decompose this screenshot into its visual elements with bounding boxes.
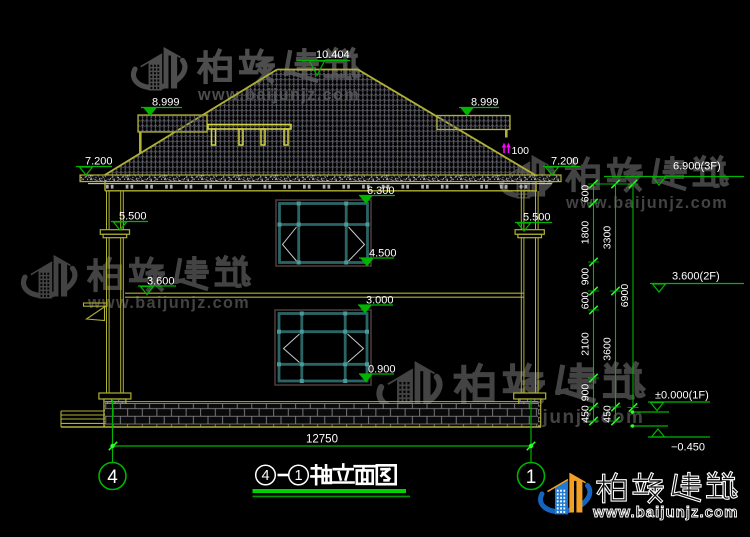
svg-text:4: 4 (107, 467, 118, 488)
svg-text:4: 4 (261, 468, 269, 484)
svg-text:1800: 1800 (580, 221, 592, 245)
svg-text:600: 600 (580, 185, 592, 203)
svg-text:100: 100 (512, 145, 530, 157)
svg-text:5.500: 5.500 (523, 212, 551, 224)
svg-text:2100: 2100 (580, 332, 592, 356)
svg-text:7.200: 7.200 (551, 156, 579, 168)
svg-text:600: 600 (580, 292, 592, 310)
svg-text:900: 900 (580, 268, 592, 286)
svg-text:www.baijunjz.com: www.baijunjz.com (592, 504, 738, 521)
svg-text:450: 450 (602, 405, 614, 423)
svg-text:±0.000(1F): ±0.000(1F) (655, 390, 709, 402)
svg-text:450: 450 (580, 405, 592, 423)
svg-text:3.600(2F): 3.600(2F) (672, 271, 720, 283)
svg-text:6.900(3F): 6.900(3F) (673, 161, 721, 173)
svg-text:3600: 3600 (602, 337, 614, 361)
svg-text:6900: 6900 (619, 284, 631, 308)
svg-text:1: 1 (526, 467, 537, 488)
svg-text:−0.450: −0.450 (671, 442, 705, 454)
svg-text:3300: 3300 (602, 226, 614, 250)
svg-text:5.500: 5.500 (119, 211, 147, 223)
svg-text:10.404: 10.404 (316, 49, 350, 61)
svg-text:12750: 12750 (306, 434, 338, 446)
svg-text:900: 900 (580, 384, 592, 402)
svg-text:1: 1 (294, 468, 302, 484)
svg-text:8.999: 8.999 (152, 97, 180, 109)
svg-text:7.200: 7.200 (85, 156, 113, 168)
svg-text:8.999: 8.999 (471, 97, 499, 109)
